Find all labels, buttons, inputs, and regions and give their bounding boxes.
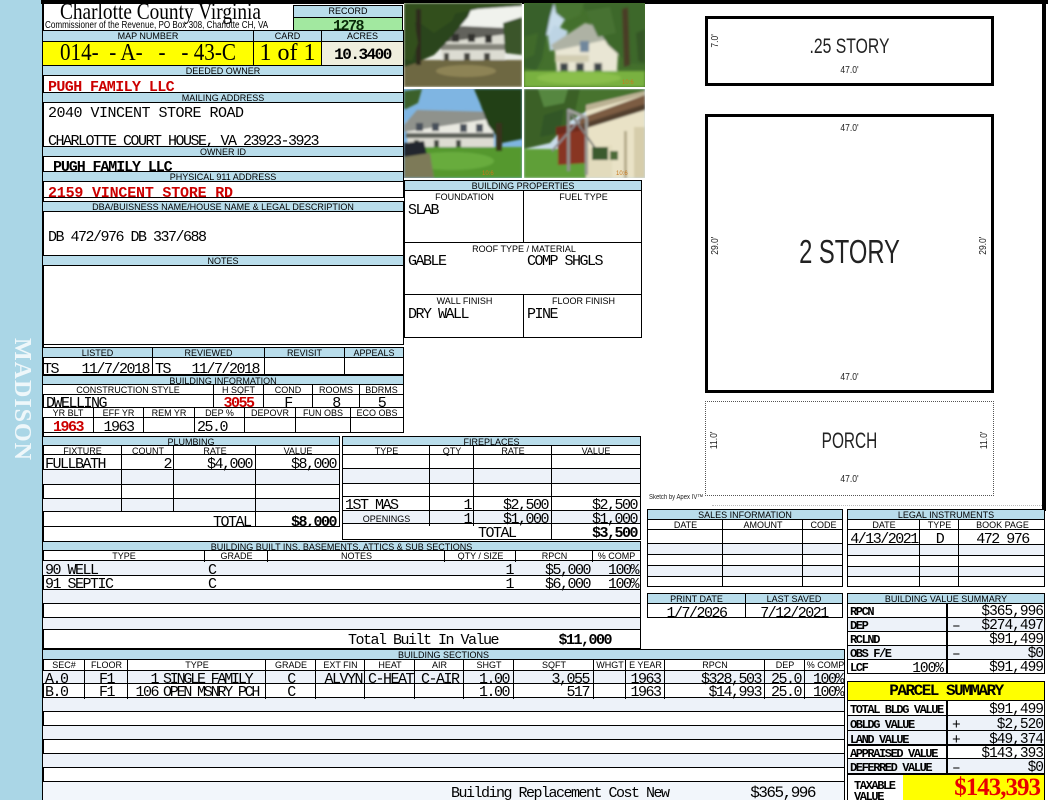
svg-text:10:6: 10:6 [622,80,634,86]
svg-text:10:6: 10:6 [482,171,494,177]
svg-text:10:6: 10:6 [616,171,628,177]
